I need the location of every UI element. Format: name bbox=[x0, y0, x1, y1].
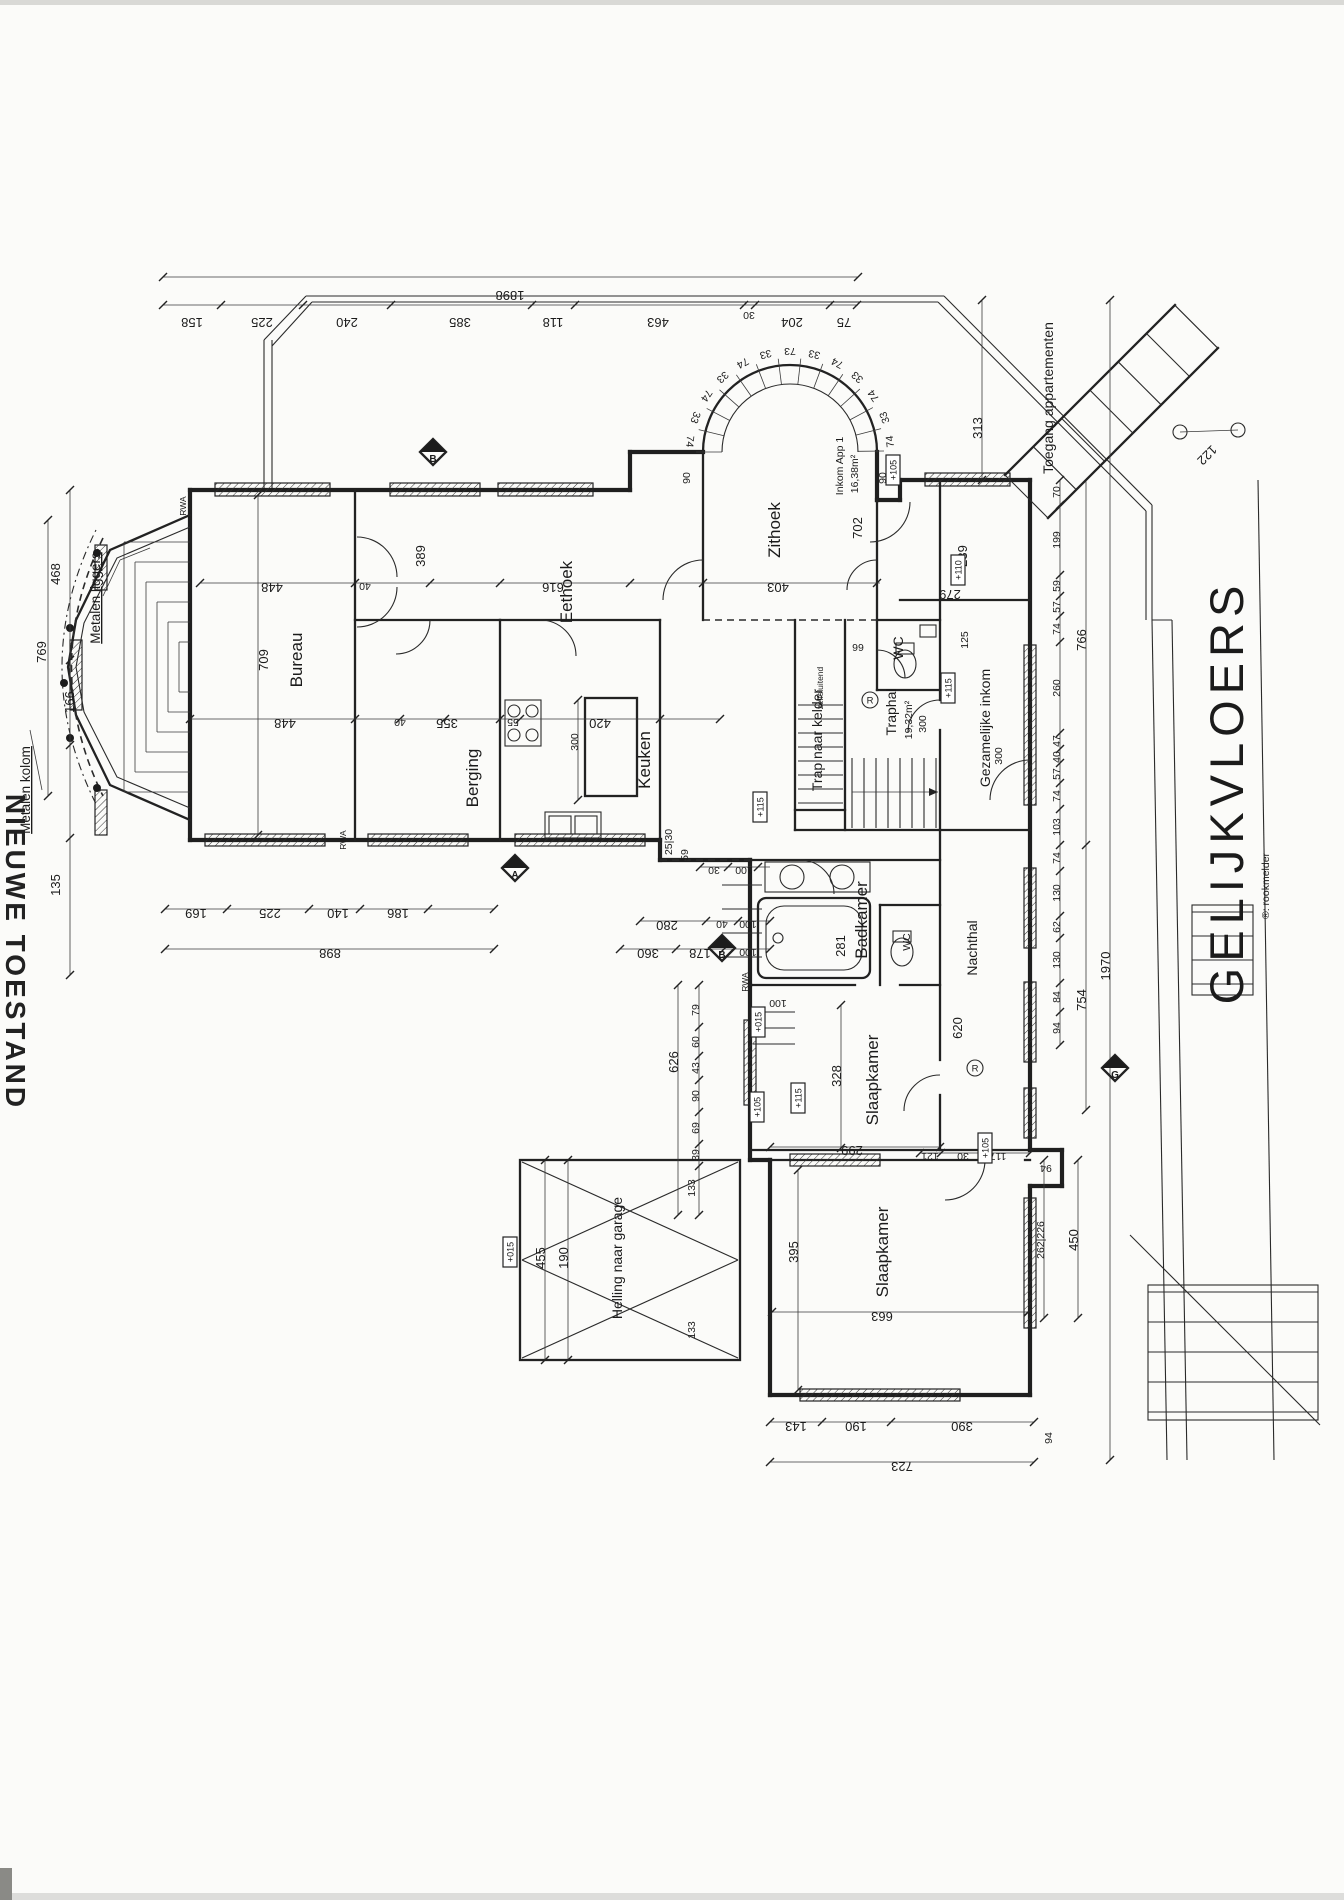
dim-label: 754 bbox=[1074, 989, 1089, 1011]
dim-label: 626 bbox=[666, 1051, 681, 1073]
smoke-detector-icon: R bbox=[862, 692, 878, 708]
label-metalen-liggers: Metalen liggers bbox=[88, 552, 103, 644]
dim-label: 59 bbox=[1051, 580, 1063, 592]
dim-label: 450 bbox=[1066, 1229, 1081, 1251]
dim-label: 94 bbox=[1043, 1432, 1055, 1444]
smoke-legend: ®: rookmelder bbox=[1260, 852, 1272, 919]
window-icon bbox=[498, 483, 593, 496]
dim-label: 135 bbox=[48, 874, 63, 896]
section-marker-icon: A bbox=[502, 855, 528, 881]
door-swing-icon bbox=[357, 537, 397, 577]
window-icon bbox=[215, 483, 330, 496]
scan-edge-bottom bbox=[0, 1893, 1344, 1900]
dim-label: 84 bbox=[1051, 991, 1063, 1003]
svg-text:R: R bbox=[972, 1063, 979, 1074]
dim-label: 133 bbox=[686, 1179, 698, 1197]
arc-dim: 74 bbox=[734, 355, 750, 371]
room-label-wc-2: WC bbox=[901, 933, 913, 951]
dim-label: 100 bbox=[739, 946, 757, 958]
area-traphal: 19,32m² bbox=[903, 700, 915, 739]
room-label-slaapkamer-2: Slaapkamer bbox=[873, 1206, 892, 1297]
section-marker-icon: G bbox=[1102, 1055, 1128, 1081]
dim-label: 403 bbox=[767, 580, 789, 595]
svg-text:+115: +115 bbox=[793, 1088, 803, 1108]
room-label-bureau: Bureau bbox=[287, 633, 306, 688]
door-swing-icon bbox=[847, 560, 877, 590]
page-title: GELIJKVLOERS bbox=[1200, 580, 1253, 1005]
level-marker: +110 bbox=[951, 555, 965, 585]
level-marker: +115 bbox=[941, 673, 955, 703]
dim-label: 122 bbox=[1194, 442, 1220, 468]
dim-label: 133 bbox=[686, 1321, 698, 1339]
dim-label: 121 bbox=[921, 1150, 939, 1162]
door-swing-icon bbox=[904, 1075, 940, 1111]
dim-label: 190 bbox=[845, 1419, 867, 1434]
window-icon bbox=[800, 1389, 960, 1401]
window-icon bbox=[95, 790, 107, 835]
level-marker: +105 bbox=[750, 1092, 764, 1122]
room-label-zithoek: Zithoek bbox=[765, 502, 784, 558]
dim-label: RWA bbox=[338, 830, 348, 850]
level-marker: +115 bbox=[753, 792, 767, 822]
svg-text:+115: +115 bbox=[755, 797, 765, 817]
dim-label: 448 bbox=[274, 716, 296, 731]
scan-smudge bbox=[0, 1868, 12, 1900]
window-icon bbox=[925, 473, 1010, 486]
window-icon bbox=[1024, 645, 1036, 805]
window-icon bbox=[790, 1154, 880, 1166]
door-swing-icon bbox=[945, 1160, 985, 1200]
dim-label: 100 bbox=[769, 997, 787, 1009]
svg-text:+105: +105 bbox=[888, 460, 898, 480]
dim-label: 130 bbox=[1051, 951, 1063, 969]
floor-plan-page: BureauEethoekBergingKeukenZithoekBadkame… bbox=[0, 0, 1344, 1900]
dim-label: 204 bbox=[781, 315, 803, 330]
window-icon bbox=[390, 483, 480, 496]
room-label-berging: Berging bbox=[463, 749, 482, 808]
dim-label: 94 bbox=[1051, 1022, 1063, 1034]
dim-label: 225 bbox=[251, 315, 273, 330]
dim-label: 702 bbox=[850, 517, 865, 539]
dim-label: 225 bbox=[259, 906, 281, 921]
dim-label: 186 bbox=[387, 906, 409, 921]
dim-label: 66 bbox=[852, 641, 864, 653]
dim-label: 279 bbox=[939, 587, 961, 602]
dim-label: 395 bbox=[786, 1241, 801, 1263]
dim-label: 30 bbox=[743, 309, 755, 321]
section-marker-icon: B bbox=[420, 439, 446, 465]
dim-label: 100 bbox=[735, 864, 753, 876]
svg-text:+015: +015 bbox=[505, 1242, 515, 1262]
dim-label: 468 bbox=[48, 563, 63, 585]
dim-label: 360 bbox=[637, 946, 659, 961]
dim-label: 57 bbox=[1051, 768, 1063, 780]
dim-label: 313 bbox=[970, 417, 985, 439]
dim-label: 709 bbox=[256, 649, 271, 671]
dim-label: 57 bbox=[1051, 601, 1063, 613]
level-marker: +015 bbox=[503, 1237, 517, 1267]
dim-label: 79 bbox=[690, 1004, 702, 1016]
label-zelfsluitend: zelfsluitend bbox=[815, 666, 825, 709]
arc-dim: 74 bbox=[698, 387, 715, 404]
dim-label: 898 bbox=[319, 946, 341, 961]
dim-label: 40 bbox=[1051, 751, 1063, 763]
dim-label: 55 bbox=[507, 716, 519, 728]
dim-label: 70 bbox=[1051, 486, 1063, 498]
smoke-detector-icon: R bbox=[967, 1060, 983, 1076]
dim-label: 723 bbox=[891, 1459, 913, 1474]
dim-label: 280 bbox=[656, 918, 678, 933]
dim-label: 385 bbox=[449, 315, 471, 330]
dim-label: 30 bbox=[708, 864, 720, 876]
dim-label: 281 bbox=[833, 935, 848, 957]
edge-title: NIEUWE TOESTAND bbox=[0, 794, 31, 1110]
room-label-wc-1: WC bbox=[890, 636, 906, 659]
dimension-lines bbox=[44, 273, 1114, 1466]
dim-label: 663 bbox=[871, 1309, 893, 1324]
room-label-keuken: Keuken bbox=[635, 731, 654, 789]
dim-label: 616 bbox=[542, 580, 564, 595]
dim-label: 75 bbox=[837, 315, 851, 330]
dim-label: 390 bbox=[951, 1419, 973, 1434]
dim-label: RWA bbox=[740, 972, 750, 992]
dim-label: 25|30 bbox=[663, 829, 675, 855]
window-icon bbox=[1024, 868, 1036, 948]
dim-label: 166 bbox=[62, 691, 77, 713]
dim-label: 74 bbox=[1051, 852, 1063, 864]
dim-label: 40 bbox=[394, 716, 406, 728]
window-icon bbox=[368, 834, 468, 846]
walls bbox=[190, 359, 1062, 1395]
svg-text:+015: +015 bbox=[753, 1012, 763, 1032]
dim-label: 100 bbox=[739, 918, 757, 930]
level-marker: +105 bbox=[978, 1133, 992, 1163]
dim-label: 62 bbox=[1051, 921, 1063, 933]
level-marker: +015 bbox=[751, 1007, 765, 1037]
dim-label: 299 bbox=[841, 1143, 863, 1158]
arc-dim: 74 bbox=[829, 355, 845, 371]
data-layer: BureauEethoekBergingKeukenZithoekBadkame… bbox=[0, 288, 1272, 1474]
arc-dim: 74 bbox=[884, 435, 897, 448]
dim-label: 143 bbox=[785, 1419, 807, 1434]
dim-label: 1970 bbox=[1098, 952, 1113, 981]
room-label-traphal: Traphal bbox=[883, 689, 899, 736]
dim-label: 40 bbox=[359, 580, 371, 592]
dim-label: 190 bbox=[556, 1247, 571, 1269]
dim-label: 620 bbox=[950, 1017, 965, 1039]
svg-text:+105: +105 bbox=[752, 1097, 762, 1117]
metalen-kolom-dot bbox=[93, 784, 101, 792]
dim-label: 43 bbox=[690, 1062, 702, 1074]
window-icon bbox=[205, 834, 325, 846]
dim-label: 130 bbox=[1051, 884, 1063, 902]
dim-label: 260 bbox=[1051, 679, 1063, 697]
dim-label: 60 bbox=[690, 1036, 702, 1048]
arc-dim: 33 bbox=[714, 369, 731, 386]
dim-label: 448 bbox=[261, 580, 283, 595]
area-inkom-app1: 16,38m² bbox=[849, 454, 861, 493]
dim-label: 169 bbox=[185, 906, 207, 921]
dim-label: 39 bbox=[690, 1149, 702, 1161]
dim: 300 bbox=[917, 715, 929, 733]
svg-text:B: B bbox=[429, 454, 436, 465]
dim-label: 30 bbox=[957, 1150, 969, 1162]
dim-label: 300 bbox=[569, 733, 581, 751]
svg-text:G: G bbox=[1111, 1070, 1119, 1081]
room-label-gezamelijke-inkom: Gezamelijke inkom bbox=[977, 669, 993, 787]
window-icon bbox=[1024, 1088, 1036, 1138]
svg-text:+115: +115 bbox=[943, 678, 953, 698]
dim-label: 199 bbox=[1051, 531, 1063, 549]
dim-label: 769 bbox=[34, 641, 49, 663]
dim-label: 178 bbox=[689, 946, 711, 961]
window-icon bbox=[1024, 1198, 1036, 1328]
dim-label: 74 bbox=[1051, 790, 1063, 802]
level-marker: +105 bbox=[886, 455, 900, 485]
door-swing-icon bbox=[396, 620, 430, 654]
dim-label: 40 bbox=[716, 918, 728, 930]
arc-dim: 74 bbox=[865, 387, 882, 404]
svg-text:B: B bbox=[718, 950, 725, 961]
room-label-inkom-app1: Inkom App 1 bbox=[834, 437, 846, 496]
dim-label: 158 bbox=[181, 315, 203, 330]
dim-label: 69 bbox=[690, 1122, 702, 1134]
arc-dim: 73 bbox=[784, 345, 796, 357]
svg-text:A: A bbox=[511, 870, 518, 881]
svg-text:+105: +105 bbox=[980, 1138, 990, 1158]
dim-label: 59 bbox=[679, 849, 691, 861]
arc-dim: 33 bbox=[807, 347, 821, 362]
arc-dim: 33 bbox=[687, 410, 702, 425]
dim-label: RWA bbox=[178, 496, 188, 516]
bow-window bbox=[30, 515, 190, 820]
dim-label: 300 bbox=[993, 747, 1005, 765]
room-label-badkamer: Badkamer bbox=[852, 881, 871, 959]
dim-label: 455 bbox=[533, 1247, 548, 1269]
room-label-slaapkamer-1: Slaapkamer bbox=[863, 1034, 882, 1125]
door-swing-icon bbox=[540, 620, 576, 656]
dim-label: 766 bbox=[1074, 629, 1089, 651]
door-swing-icon bbox=[663, 560, 703, 600]
dim-label: 74 bbox=[1051, 623, 1063, 635]
svg-text:+110: +110 bbox=[953, 560, 963, 580]
window-icon bbox=[515, 834, 645, 846]
dim-label: 328 bbox=[829, 1065, 844, 1087]
dim-label: 125 bbox=[959, 631, 971, 649]
dim-label: 140 bbox=[327, 906, 349, 921]
label-toegang-appartementen: Toegang appartementen bbox=[1040, 322, 1056, 474]
scan-edge-top bbox=[0, 0, 1344, 5]
floor-plan-drawing: BureauEethoekBergingKeukenZithoekBadkame… bbox=[0, 0, 1344, 1900]
dim-label: 355 bbox=[436, 716, 458, 731]
level-marker: +115 bbox=[791, 1083, 805, 1113]
arc-dim: 33 bbox=[849, 368, 866, 385]
dim-label: 389 bbox=[413, 545, 428, 567]
door-swing-icon bbox=[800, 860, 834, 894]
dim-label: 103 bbox=[1051, 818, 1063, 836]
dim-label: 90 bbox=[690, 1090, 702, 1102]
dim-label: 94 bbox=[1040, 1162, 1052, 1174]
dim-label: 240 bbox=[336, 315, 358, 330]
dim-label: 420 bbox=[589, 716, 611, 731]
dim-label: 1898 bbox=[496, 288, 525, 303]
window-icon bbox=[1024, 982, 1036, 1062]
arc-dim: 74 bbox=[683, 435, 696, 448]
dim-label: 262|226 bbox=[1035, 1221, 1047, 1259]
dim-label: 90 bbox=[681, 472, 693, 484]
dim-label: 47 bbox=[1051, 735, 1063, 747]
metalen-kolom-dot bbox=[60, 679, 68, 687]
dim-label: 463 bbox=[647, 315, 669, 330]
room-label-helling: Helling naar garage bbox=[609, 1197, 625, 1319]
arc-dim: 33 bbox=[758, 347, 772, 362]
dim-label: 118 bbox=[543, 315, 564, 330]
svg-text:R: R bbox=[867, 695, 874, 706]
arc-dim: 33 bbox=[877, 410, 892, 425]
room-label-nachthal: Nachthal bbox=[964, 920, 980, 975]
